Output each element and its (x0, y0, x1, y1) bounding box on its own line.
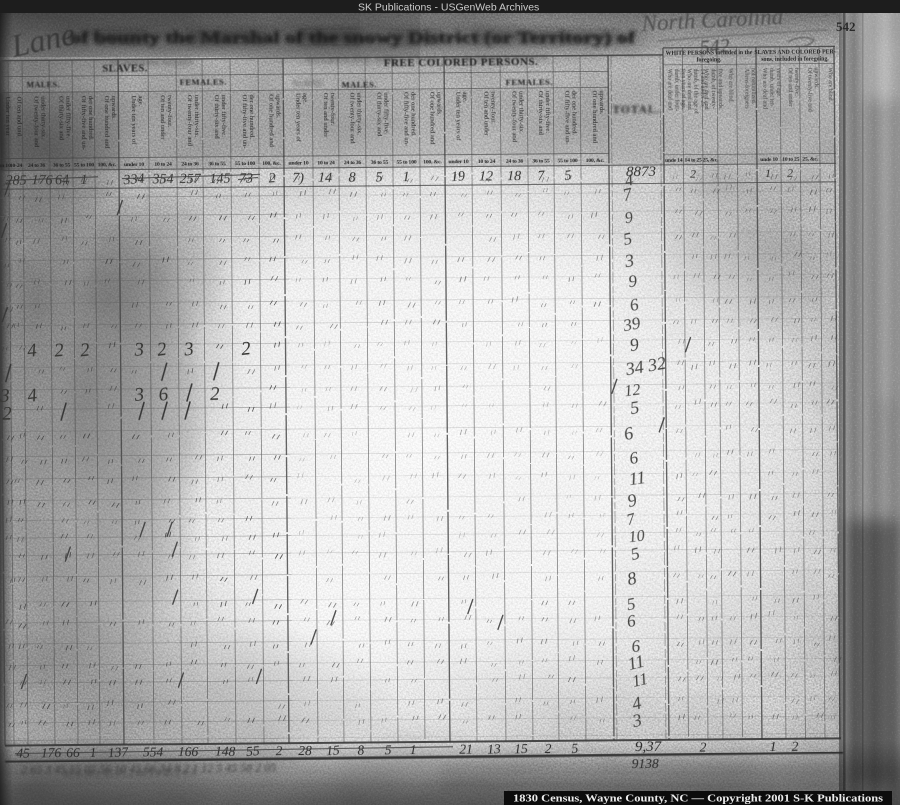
svg-text:1830 Census, Wayne County, NC: 1830 Census, Wayne County, NC — Copyrigh… (513, 794, 883, 805)
svg-text:542: 542 (699, 35, 730, 59)
svg-text:542: 542 (836, 19, 856, 34)
svg-text:SK Publications - USGenWeb Arc: SK Publications - USGenWeb Archives (358, 2, 539, 14)
